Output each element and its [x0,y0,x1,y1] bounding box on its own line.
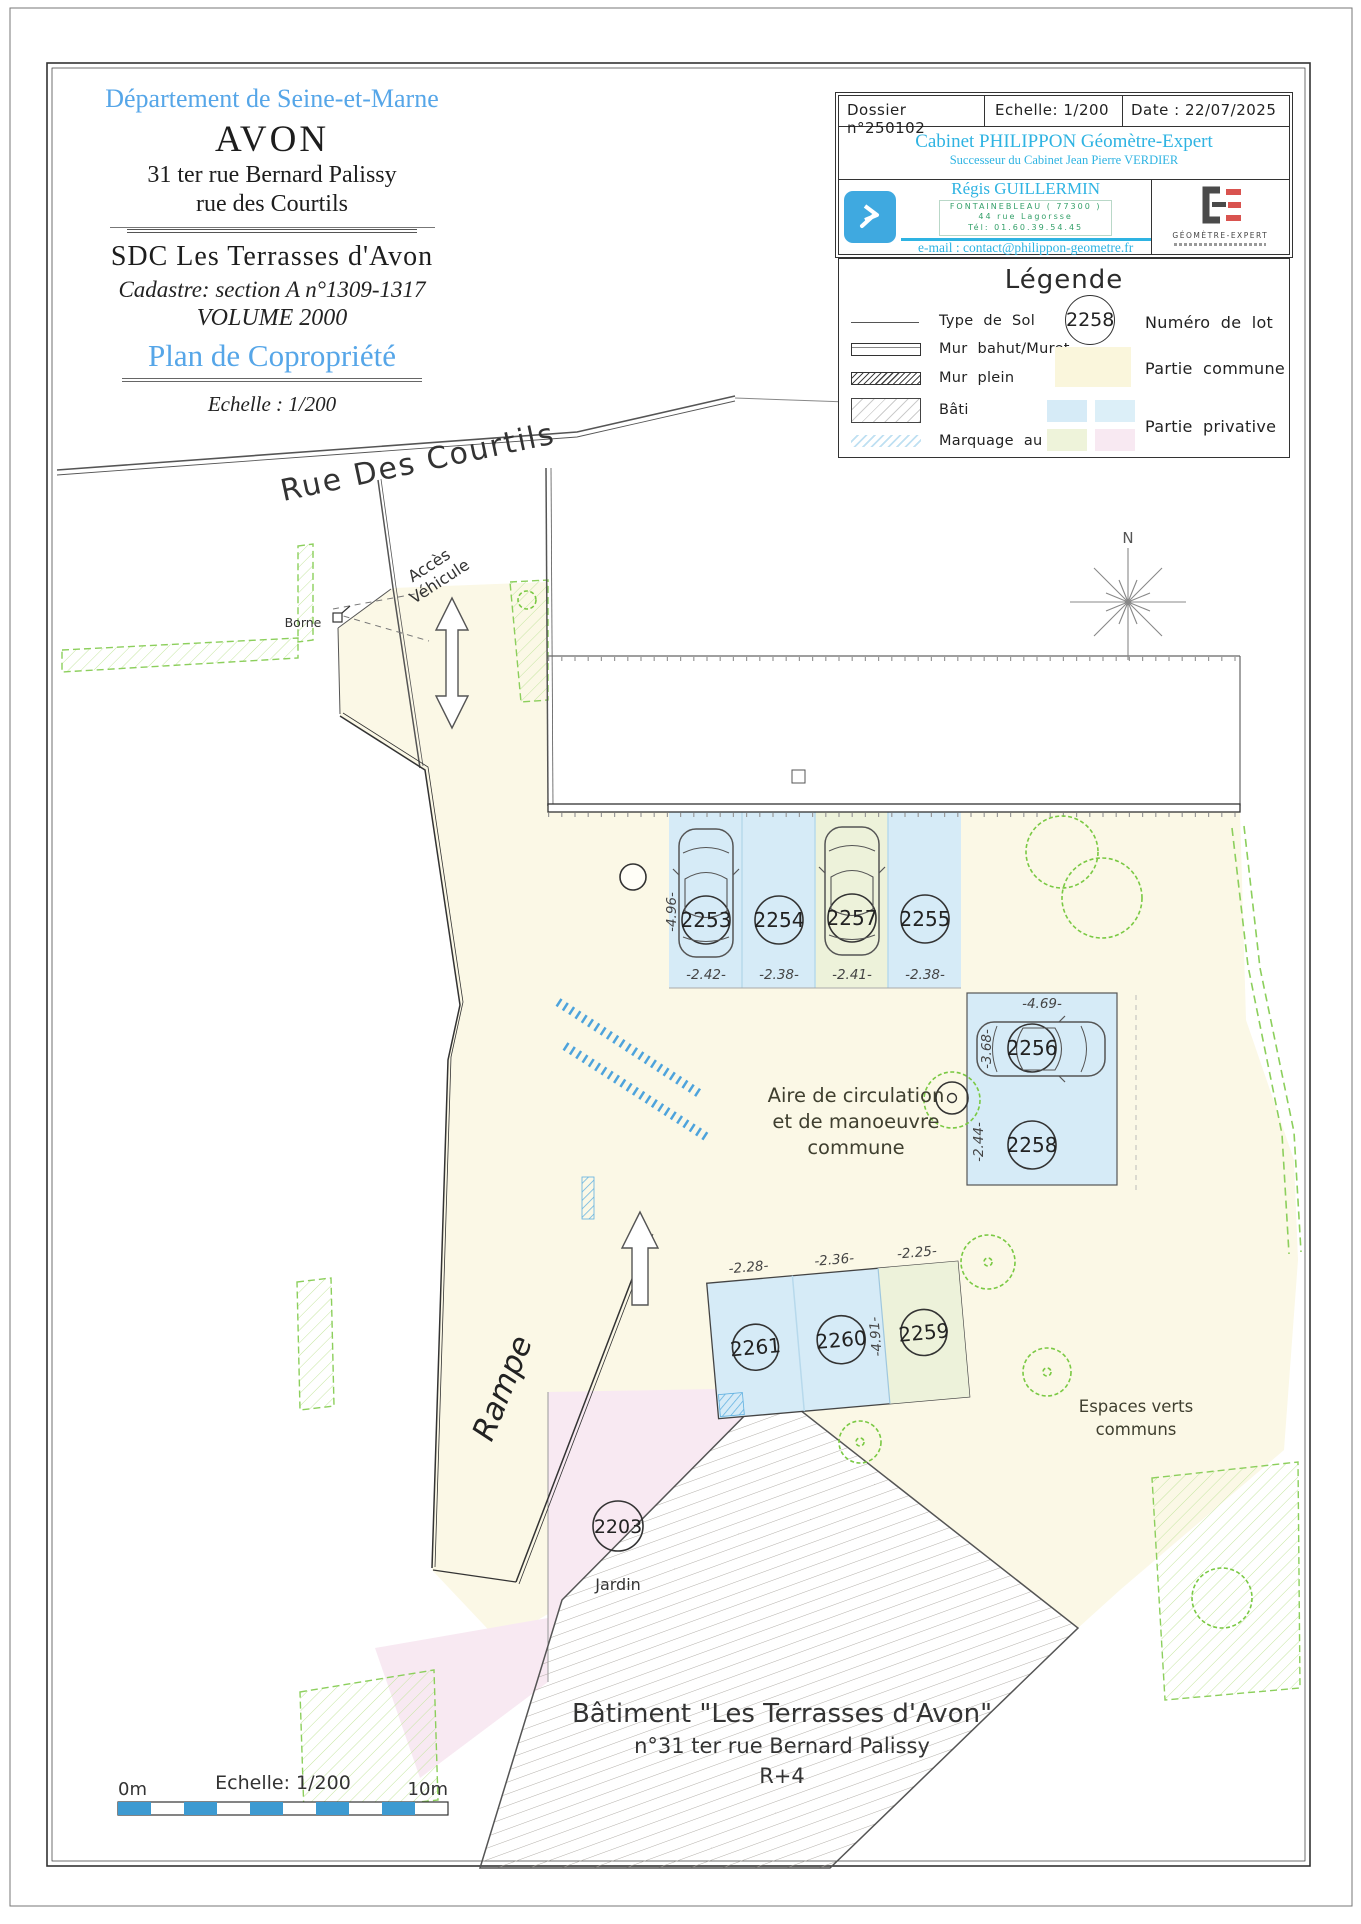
dim-a2: -2.38- [759,967,799,983]
dim-a1: -2.42- [686,967,726,983]
legend-label-lot-number: Numéro de lot [1145,313,1273,332]
parking-row-a [669,812,961,988]
building-symbol [851,398,921,423]
department-title: Département de Seine-et-Marne [62,84,482,114]
north-label: N [1122,529,1133,547]
cabinet-logo-cell [839,180,901,254]
solid-wall-symbol [851,372,921,385]
ground-marking-symbol [851,435,921,447]
legend-label-low-wall: Mur bahut/Muret [939,341,1070,357]
circulation-label-line1: Aire de circulation [768,1084,945,1107]
syndicate-title: SDC Les Terrasses d'Avon [62,241,482,273]
divider-rule [110,227,435,228]
legend-label-solid-wall: Mur plein [939,370,1014,386]
office-phone: Tél: 01.60.39.54.45 [950,223,1102,234]
scale-bar-title: Echelle: 1/200 [215,1772,351,1794]
office-city: FONTAINEBLEAU ( 77300 ) [950,202,1102,213]
scale-bar-ten: 10m [408,1779,448,1800]
surveyor-info: Régis GUILLERMIN FONTAINEBLEAU ( 77300 )… [901,180,1151,254]
scale-note: Echelle : 1/200 [62,392,482,417]
legend-title: Légende [839,265,1289,295]
lot-number-2254: 2254 [754,908,805,932]
plan-sheet: Rue Des Courtils Accès Véhicule Borne N … [0,0,1361,1924]
soil-type-symbol [851,322,919,323]
office-street: 44 rue Lagorsse [950,212,1102,223]
ge-logo-cell: GÉOMÈTRE-EXPERT [1151,180,1289,254]
dossier-number: Dossier n°250102 [839,96,985,126]
lot-number-2257: 2257 [827,906,878,930]
circulation-label-line3: commune [807,1136,904,1159]
private-area-swatch-green [1047,429,1087,451]
drawing-date: Date : 22/07/2025 [1123,96,1289,126]
lot-number-2253: 2253 [681,908,732,932]
title-block-info-row: Dossier n°250102 Echelle: 1/200 Date : 2… [839,96,1289,127]
building-label-line1: Bâtiment "Les Terrasses d'Avon" [572,1699,992,1729]
legend-label-building: Bâti [939,402,969,418]
lot-number-2256: 2256 [1007,1036,1058,1060]
dim-a4: -2.38- [905,967,945,983]
title-block: Dossier n°250102 Echelle: 1/200 Date : 2… [838,95,1290,255]
street-label: Rue Des Courtils [277,416,558,508]
building-label-line2: n°31 ter rue Bernard Palissy [634,1734,930,1758]
address-line2: rue des Courtils [62,190,482,219]
office-email: e-mail : contact@philippon-geometre.fr [901,241,1151,256]
geometre-expert-logo-icon [1196,186,1244,224]
borne-label: Borne [285,615,322,630]
volume-reference: VOLUME 2000 [62,305,482,332]
drawing-scale: Echelle: 1/200 [985,96,1123,126]
private-area-swatch-blue1 [1047,400,1087,422]
lot-number-2258: 2258 [1007,1133,1058,1157]
legend-label-soil: Type de Sol [939,313,1035,329]
plan-title: Plan de Copropriété [62,338,482,374]
ground-marking-patch [718,1393,744,1417]
dim-b2-width: -2.44- [971,1122,987,1162]
cabinet-logo-icon [844,191,896,243]
green-spaces-label-line1: Espaces verts [1079,1397,1193,1416]
low-wall-symbol [851,343,921,356]
lot-number-2261: 2261 [729,1333,782,1361]
jardin-label: Jardin [594,1575,641,1594]
surveyor-row: Régis GUILLERMIN FONTAINEBLEAU ( 77300 )… [839,180,1289,254]
dim-b-depth: -3.68- [979,1029,995,1069]
cadastre-reference: Cadastre: section A n°1309-1317 [62,277,482,303]
chevron-arrows-icon [853,200,887,234]
legend: Légende Type de Sol Mur bahut/Muret Mur … [838,258,1290,458]
lot-number-2203: 2203 [594,1516,642,1538]
private-area-swatch-pink [1095,429,1135,451]
lot-number-sample: 2258 [1065,295,1115,345]
ge-logo-label: GÉOMÈTRE-EXPERT [1152,231,1289,240]
dim-a3: -2.41- [832,967,872,983]
circulation-label-line2: et de manoeuvre [772,1110,939,1133]
lot-number-2255: 2255 [900,907,951,931]
legend-label-common: Partie commune [1145,359,1285,378]
divider-rule-double [127,229,417,233]
dim-row-a-depth: -4.96- [664,892,680,932]
lot-number-2259: 2259 [897,1318,950,1346]
cabinet-successor: Successeur du Cabinet Jean Pierre VERDIE… [839,153,1289,168]
title-header: Département de Seine-et-Marne AVON 31 te… [62,84,482,417]
plan-title-underline [122,378,422,382]
dim-b-width: -4.69- [1022,996,1062,1012]
building-label-line3: R+4 [759,1764,805,1788]
scale-bar-zero: 0m [118,1779,147,1800]
lot-number-2260: 2260 [815,1326,868,1354]
city-title: AVON [62,118,482,161]
green-spaces-label-line2: communs [1096,1420,1177,1439]
manhole-icon [620,864,646,890]
office-contact-box: FONTAINEBLEAU ( 77300 ) 44 rue Lagorsse … [939,200,1113,236]
common-area-swatch [1055,347,1131,387]
north-compass-icon [1070,548,1186,660]
private-area-swatch-blue2 [1095,400,1135,422]
legend-label-private: Partie privative [1145,417,1276,436]
ge-logo-subline [1174,243,1266,246]
surveyor-name: Régis GUILLERMIN [901,180,1151,199]
address-line1: 31 ter rue Bernard Palissy [62,161,482,190]
